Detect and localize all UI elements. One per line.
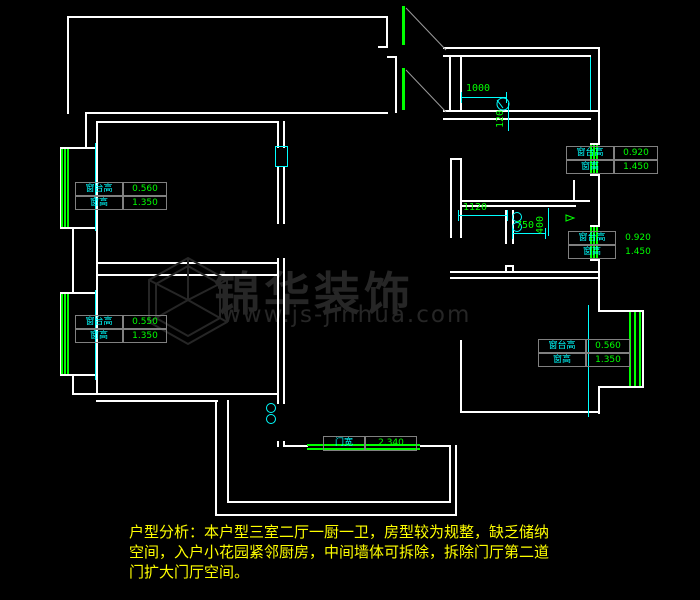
window-height-label: 窗高 [538, 353, 586, 367]
analysis-text-line2: 空间，入户小花园紧邻厨房，中间墙体可拆除，拆除门厅第二道 [129, 542, 549, 562]
dimension-bath-door: 750 [516, 221, 534, 231]
window-height-value: 1.450 [616, 245, 660, 259]
door-width-table: 门宽 2.340 [323, 436, 417, 451]
window-sill-label: 窗台高 [538, 339, 586, 353]
door-symbol [267, 415, 276, 424]
door-swing-line [406, 8, 446, 50]
window-sill-value: 0.560 [586, 339, 630, 353]
window-height-label: 窗高 [566, 160, 614, 174]
north-marker [566, 215, 574, 221]
window-sill-label: 窗台高 [75, 182, 123, 196]
window-sill-label: 窗台高 [566, 146, 614, 160]
window-table-mid-right: 窗台高 0.920 窗高 1.450 [568, 231, 660, 259]
window-height-value: 1.350 [123, 196, 167, 210]
window-height-value: 1.350 [123, 329, 167, 343]
window-table-upper-right: 窗台高 0.920 窗高 1.450 [566, 146, 658, 174]
dimension-entry-depth: 120 [496, 110, 506, 128]
door-width-value: 2.340 [365, 436, 417, 451]
window-sill-value: 0.920 [614, 146, 658, 160]
window-table-lower-left: 窗台高 0.550 窗高 1.350 [75, 315, 167, 343]
cad-viewport[interactable]: 锦华装饰 www.js-jinhua.com 1000 120 1120 750… [0, 0, 700, 600]
window-sill-label: 窗台高 [75, 315, 123, 329]
dimension-kitchen-opening: 1120 [463, 203, 487, 213]
analysis-text-line3: 门扩大门厅空间。 [129, 562, 249, 582]
window-height-label: 窗高 [75, 196, 123, 210]
door-symbol [267, 404, 276, 413]
dimension-bath-side: 400 [536, 216, 546, 234]
door-frame-marker [275, 146, 288, 167]
window-sill-value: 0.920 [616, 231, 660, 245]
window-table-lower-right: 窗台高 0.560 窗高 1.350 [538, 339, 630, 367]
symbol-overlay [0, 0, 700, 600]
column-symbol [497, 98, 509, 110]
dimension-entry-width: 1000 [466, 84, 490, 94]
window-height-value: 1.450 [614, 160, 658, 174]
window-sill-value: 0.550 [123, 315, 167, 329]
window-height-label: 窗高 [568, 245, 616, 259]
door-width-label: 门宽 [323, 436, 365, 451]
window-height-label: 窗高 [75, 329, 123, 343]
window-sill-value: 0.560 [123, 182, 167, 196]
analysis-text-line1: 户型分析：本户型三室二厅一厨一卫，房型较为规整，缺乏储纳 [129, 522, 549, 542]
window-height-value: 1.350 [586, 353, 630, 367]
window-table-upper-left: 窗台高 0.560 窗高 1.350 [75, 182, 167, 210]
window-sill-label: 窗台高 [568, 231, 616, 245]
door-swing-line [406, 70, 446, 112]
